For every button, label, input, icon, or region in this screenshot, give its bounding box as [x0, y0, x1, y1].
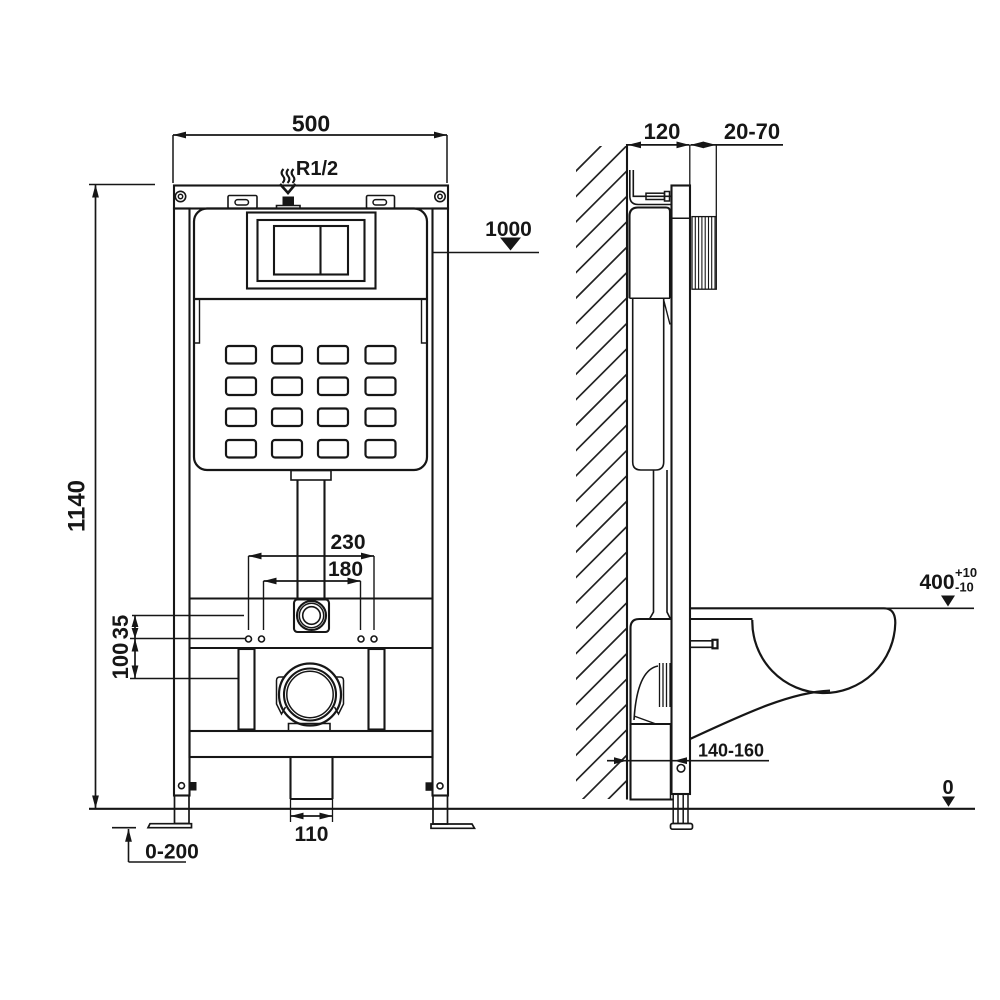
svg-text:+10: +10 [955, 565, 977, 580]
svg-text:500: 500 [292, 111, 330, 137]
svg-text:140-160: 140-160 [698, 741, 764, 761]
svg-text:35: 35 [108, 615, 133, 639]
svg-text:0-200: 0-200 [145, 841, 199, 864]
svg-text:400: 400 [919, 571, 954, 594]
svg-text:R1/2: R1/2 [296, 158, 338, 180]
svg-text:180: 180 [328, 558, 363, 581]
svg-text:230: 230 [330, 531, 365, 554]
svg-text:1140: 1140 [64, 480, 91, 532]
svg-text:20-70: 20-70 [724, 119, 780, 144]
svg-text:-10: -10 [955, 580, 974, 595]
svg-text:100: 100 [108, 643, 133, 680]
svg-text:110: 110 [295, 823, 329, 846]
svg-text:120: 120 [644, 119, 681, 144]
svg-text:0: 0 [942, 777, 953, 799]
